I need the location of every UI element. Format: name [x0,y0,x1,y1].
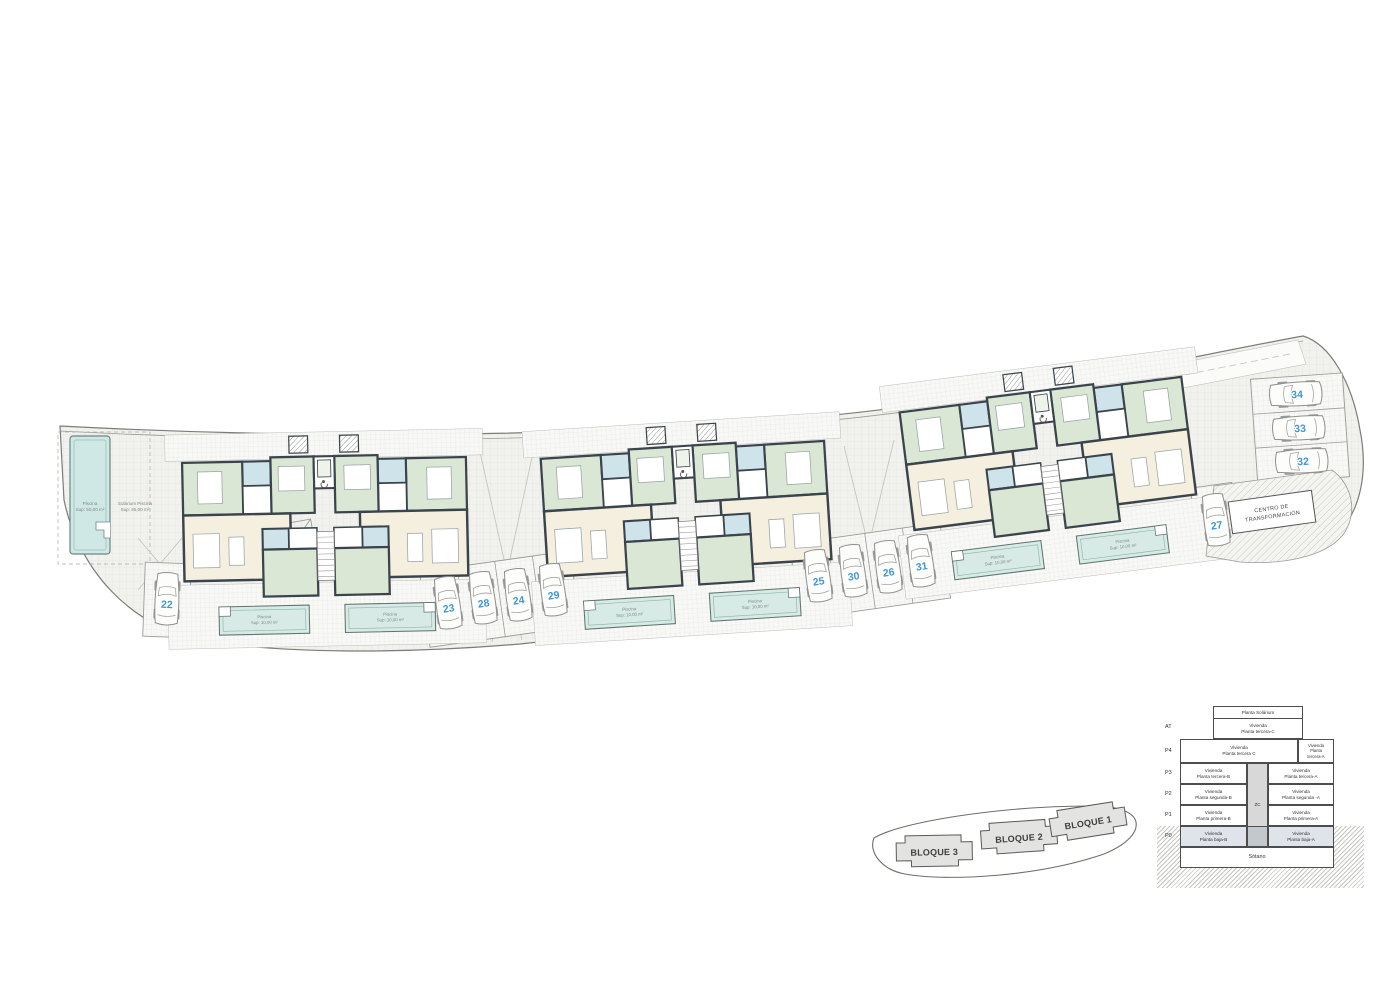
cell-text: Planta baja-A [1287,837,1315,843]
cell-text: Planta primera-A [1284,816,1318,822]
car-number: 24 [512,594,525,608]
legend-cell-at: Vivienda Planta tercera-C [1213,718,1303,739]
communal-pool-area-label: Sup: 50,00 m² [76,507,105,512]
car-number: 27 [1210,519,1223,533]
legend-zc-base [1247,826,1268,847]
legend-row-label-p0: P0 [1165,833,1172,839]
cell-text: tercera-A [1307,754,1324,759]
cell-text: Planta tercera-B [1197,774,1230,780]
car-number: 28 [477,597,490,611]
legend-cell-p1-left: Vivienda Planta primera-B [1180,805,1247,826]
sotano-label: Sótano [1248,854,1265,861]
key-bloque-3-label: BLOQUE 3 [910,847,958,858]
car-number: 33 [1294,423,1306,436]
legend-row-label-p2: P2 [1165,791,1172,797]
site-plan-page: Piscina Sup: 10,00 m² Piscina Sup: 10,00… [0,0,1400,989]
legend-cell-p4-left: Vivienda Planta tercera C [1180,739,1298,763]
location-key: BLOQUE 3 BLOQUE 2 BLOQUE 1 [873,800,1137,877]
cell-text: Planta tercera-A [1284,774,1317,780]
legend-cell-p0-left: Vivienda Planta baja-B [1180,826,1247,847]
legend-cell-p3-right: Vivienda Planta tercera-A [1268,763,1334,784]
section-legend: Planta Solárium AT Vivienda Planta terce… [1157,703,1372,893]
cell-text: Planta primera-B [1196,816,1230,822]
car-number: 32 [1297,456,1309,469]
bloque-2-plan [522,412,853,646]
legend-row-label-p1: P1 [1165,812,1172,818]
legend-cell-p3-left: Vivienda Planta tercera-B [1180,763,1247,784]
car-number: 23 [442,602,455,616]
car-number: 30 [847,570,860,584]
transformer-centre: CENTRO DE TRANSFORMACIÓN [1206,470,1352,563]
car-number: 22 [161,599,173,611]
solarium-area-label: Sup: 95,00 m² [121,507,150,512]
cell-text: Planta segunda -A [1282,795,1320,801]
parking-space-32: 32 [1275,447,1329,476]
parking-space-22: 22 [153,572,181,625]
parking-space-33: 33 [1272,414,1326,443]
legend-row-label-p3: P3 [1165,770,1172,776]
car-number: 25 [812,575,825,589]
car-number: 26 [882,566,895,580]
solarium-label: Solárium Piscina [118,501,153,506]
legend-cell-p2-left: Vivienda Planta segunda-B [1180,784,1247,805]
legend-row-label-p4: P4 [1165,748,1172,754]
cell-text: Planta baja-B [1200,837,1228,843]
legend-cell-p0-right: Vivienda Planta baja-A [1268,826,1334,847]
legend-cell-p2-right: Vivienda Planta segunda -A [1268,784,1334,805]
legend-row-label-at: AT [1165,724,1172,730]
parking-space-34: 34 [1269,380,1323,409]
legend-solarium-label: Planta Solárium [1242,710,1274,716]
car-number: 31 [915,560,928,574]
legend-cell-sotano: Sótano [1180,847,1334,868]
car-number: 29 [547,589,560,603]
zc-label: ZC [1254,802,1260,808]
cell-text: Planta tercera C [1222,751,1255,757]
cell-text: Planta tercera-C [1241,729,1274,735]
legend-cell-p1-right: Vivienda Planta primera-A [1268,805,1334,826]
cell-text: Planta segunda-B [1195,795,1232,801]
car-number: 34 [1291,389,1303,402]
legend-cell-p4-right: Vivienda Planta tercera-A [1298,739,1334,763]
communal-pool-label: Piscina [83,501,98,506]
